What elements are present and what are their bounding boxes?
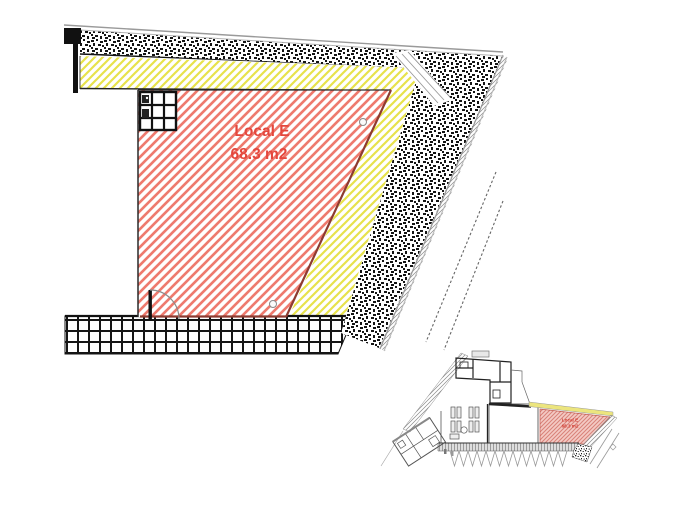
inset-annex: [393, 418, 446, 466]
inset-roof-block: [472, 351, 489, 357]
inset-local-e-area-value: 68.3 m2: [562, 424, 579, 429]
inset-hall: [489, 404, 538, 443]
inset-canopy-zigzag: [438, 443, 579, 466]
inset-survey-diamond: [610, 444, 616, 450]
architectural-drawing-page: Local E 68.3 m2: [0, 0, 680, 510]
left-wall-cap: [64, 28, 81, 93]
door-leaf: [149, 290, 152, 320]
inset-diagonal-wall: [403, 353, 468, 432]
overview-inset: Local E 68.3 m2: [381, 351, 619, 468]
local-e-area-value: 68.3 m2: [231, 146, 288, 163]
inset-shelving: [450, 407, 479, 439]
shaft-grid-symbol: [140, 92, 176, 130]
inset-step-wall: [511, 370, 530, 404]
local-e-title: Local E: [234, 123, 289, 140]
main-floor-plan: Local E 68.3 m2: [64, 25, 508, 354]
paved-walkway: [65, 316, 354, 354]
edge-marker-circle: [270, 301, 277, 308]
inset-top-rooms: [456, 358, 511, 403]
inset-building: [441, 351, 538, 443]
floor-plan-svg: Local E 68.3 m2: [0, 0, 680, 510]
inset-local-e-title: Local E: [562, 418, 578, 423]
edge-marker-circle: [360, 119, 367, 126]
